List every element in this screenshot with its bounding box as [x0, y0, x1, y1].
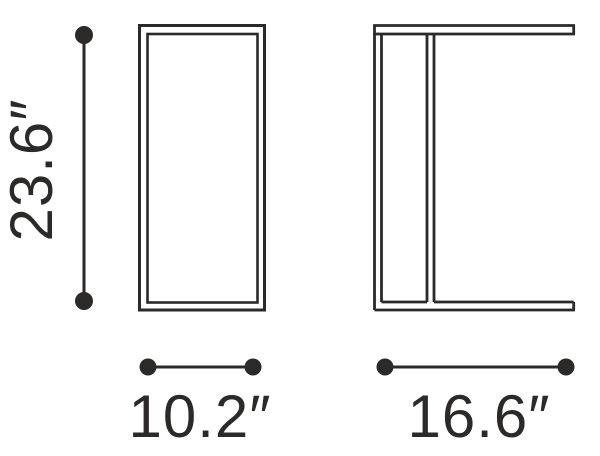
height-dimension-line [75, 26, 93, 310]
side-view-front-leg-inner [427, 34, 434, 302]
depth-dimension-label: 16.6″ [407, 387, 550, 447]
depth-dimension-right-dot [558, 359, 575, 376]
width-dimension-label: 10.2″ [128, 387, 271, 447]
width-dimension-line [140, 359, 262, 376]
width-dimension-left-dot [140, 359, 157, 376]
front-view-outer-outline [140, 26, 265, 311]
depth-dimension-left-dot [377, 359, 394, 376]
front-view [140, 26, 265, 311]
side-view-base [375, 302, 576, 310]
side-view [373, 26, 575, 311]
height-dimension-label: 23.6″ [2, 98, 62, 241]
line-art [75, 26, 575, 376]
dimension-diagram: 23.6″ 10.2″ 16.6″ [0, 0, 600, 456]
height-dimension-top-dot [75, 26, 93, 44]
width-dimension-right-dot [245, 359, 262, 376]
front-view-inner-outline [148, 34, 258, 303]
depth-dimension-line [377, 359, 575, 376]
height-dimension-bottom-dot [75, 292, 93, 310]
side-view-front-leg-outer [375, 26, 382, 311]
side-view-tabletop [373, 26, 575, 35]
